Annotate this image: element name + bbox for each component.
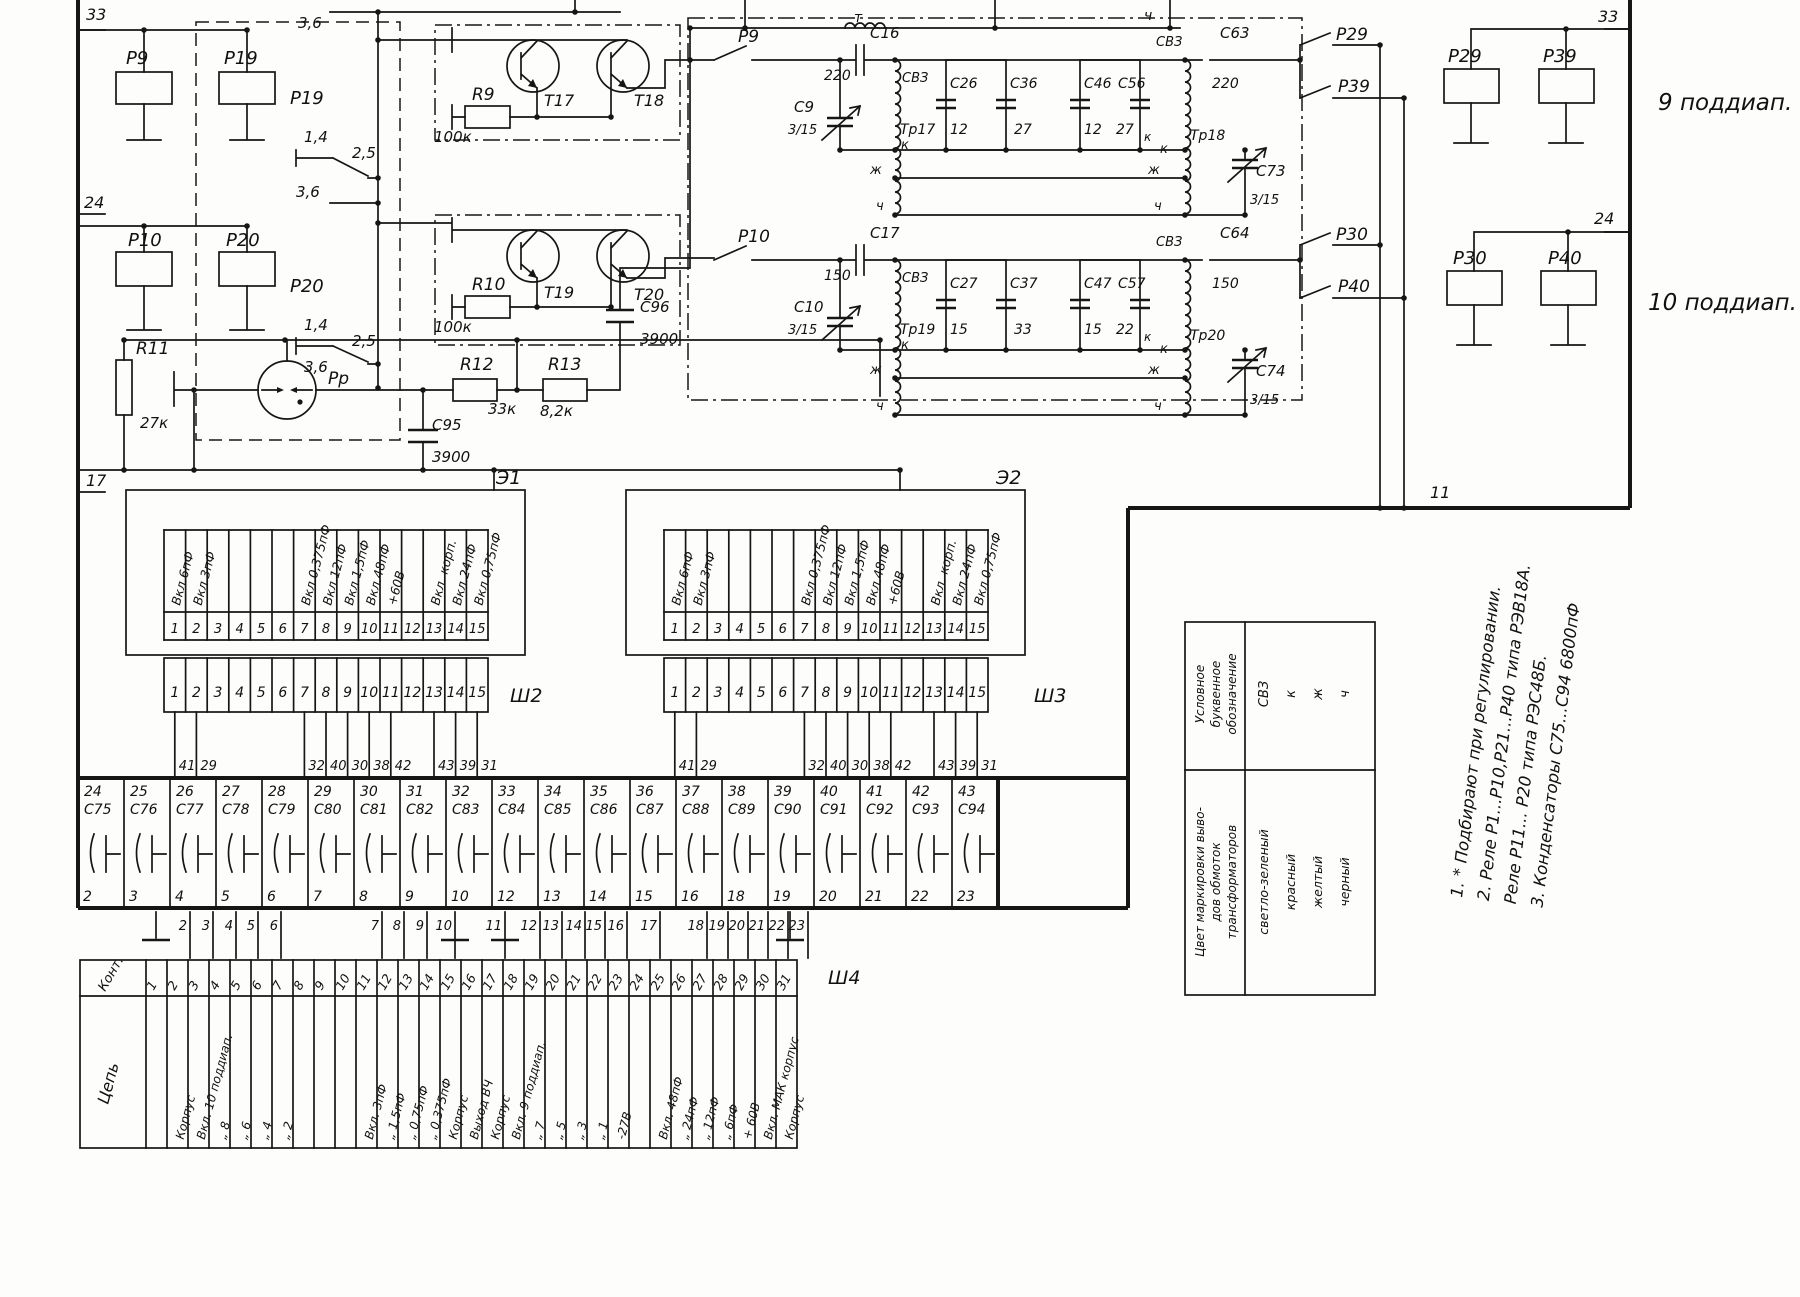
junction-dot (877, 337, 883, 343)
sw-p19c14: 1,4 (304, 128, 328, 146)
amp_bot-t1: Т19 (544, 283, 574, 302)
flb-c47v: 15 (1084, 322, 1102, 338)
misc-band9: 9 поддиап. (1658, 90, 1792, 116)
e-col-label: +60В (384, 569, 408, 607)
junction-dot (892, 57, 898, 63)
flb-c27: С27 (950, 276, 978, 292)
flb-c37: С37 (1010, 276, 1038, 292)
sh4-col-label: -27В (614, 1110, 635, 1141)
flb-zh2: ж (1147, 363, 1160, 378)
sh-pin-num: 1 (170, 685, 179, 701)
e-col-num: 15 (469, 622, 486, 637)
band-top-num: 26 (176, 784, 194, 800)
sh-pin-num: 2 (192, 685, 201, 701)
band-wire-num: 19 (708, 919, 725, 934)
sw-p20c36: 3,6 (304, 358, 328, 376)
sh4-cep-header: Цепь (94, 1060, 123, 1106)
junction-dot (687, 57, 693, 63)
junction-dot (1401, 95, 1407, 101)
band-wire-num: 20 (728, 919, 745, 934)
feedthrough-cap (275, 834, 305, 872)
band-wire-num: 18 (687, 919, 704, 934)
e-col-num: 7 (800, 622, 809, 637)
flb-p40: Р40 (1338, 277, 1370, 297)
band-top-num: 34 (544, 784, 562, 800)
junction-dot (1242, 412, 1248, 418)
band-top-num: 39 (774, 784, 792, 800)
flb-c17v: 150 (824, 268, 851, 284)
flt-c9v: 3/15 (788, 123, 817, 138)
band-cap-ref: С88 (682, 802, 710, 818)
relay-p9-box (116, 72, 172, 104)
junction-dot (121, 467, 127, 473)
sw-p19c36b: 3,6 (296, 183, 320, 201)
sh-pin-num: 13 (925, 685, 943, 701)
band-wire-num: 16 (607, 919, 624, 934)
junction-dot (1242, 147, 1248, 153)
resistor-r10 (465, 296, 510, 318)
rc-r11v: 27к (140, 414, 168, 432)
e-col-num: 10 (361, 622, 378, 637)
band-cap-ref: С83 (452, 802, 480, 818)
sh-pin-num: 3 (714, 685, 723, 701)
rc-r12v: 33к (488, 400, 516, 418)
e-col-num: 2 (692, 622, 700, 637)
rc-r11: R11 (136, 339, 169, 359)
border-l17: 17 (86, 471, 107, 490)
junction-dot (572, 9, 578, 15)
sw-p20c14: 1,4 (304, 316, 328, 334)
junction-dot (837, 347, 843, 353)
band-cap-ref: С93 (912, 802, 940, 818)
flb-c57v: 22 (1116, 322, 1134, 338)
band-bot-num: 12 (497, 889, 515, 905)
flt-c63: С63 (1220, 24, 1250, 42)
schematic-page: { "border": {"l33":"33","l24":"24","l17"… (0, 0, 1800, 1297)
junction-dot (608, 304, 614, 310)
band-wire-num: 7 (371, 919, 380, 934)
e-col-num: 15 (969, 622, 986, 637)
color-table-h1: буквенное (1209, 661, 1223, 728)
band-cap-ref: С85 (544, 802, 572, 818)
flt-k1: к (901, 138, 909, 153)
junction-dot (375, 9, 381, 15)
junction-dot (375, 175, 381, 181)
rc-r12: R12 (460, 355, 493, 375)
junction-dot (837, 57, 843, 63)
junction-dot (1401, 505, 1407, 511)
amp_top-t2: Т18 (634, 91, 664, 110)
sh-pin-num: 6 (278, 685, 287, 701)
junction-dot (282, 337, 288, 343)
junction-dot (1242, 347, 1248, 353)
e-col-num: 2 (192, 622, 200, 637)
e-col-num: 4 (735, 622, 743, 637)
junction-dot (491, 467, 497, 473)
band-cap-ref: С91 (820, 802, 848, 818)
feedthrough-cap (505, 834, 535, 872)
feedthrough-cap (919, 834, 949, 872)
flb-c47: С47 (1084, 276, 1112, 292)
flb-tr2: Тр20 (1190, 328, 1225, 344)
flb-c10: С10 (794, 298, 824, 316)
sh-wire-num: 40 (330, 759, 347, 774)
band-wire-num: 21 (748, 919, 765, 934)
e-col-num: 3 (214, 622, 222, 637)
band-bot-num: 16 (681, 889, 699, 905)
flt-svz1: СВЗ (902, 71, 928, 86)
relay-p10-box (116, 252, 172, 286)
sh-pin-num: 9 (343, 685, 352, 701)
flb-svz1: СВЗ (902, 271, 928, 286)
sh-pin-num: 2 (692, 685, 701, 701)
junction-dot (892, 257, 898, 263)
color-code: СВЗ (1257, 681, 1272, 707)
amp_top-t1: Т17 (544, 91, 575, 110)
e-col-label: Вкл.0,75пФ (971, 530, 1005, 606)
circuit-schematic: 3324173324119 поддиап.10 поддиап.Р9Р19Р1… (0, 0, 1800, 1297)
band-bot-num: 21 (865, 889, 883, 905)
band-wire-num: 5 (247, 919, 255, 934)
junction-dot (992, 25, 998, 31)
junction-dot (244, 223, 250, 229)
e-col-num: 1 (671, 622, 679, 637)
e-col-num: 9 (843, 622, 851, 637)
band-wire-num: 10 (435, 919, 452, 934)
band-bot-num: 8 (359, 889, 368, 905)
band-top-num: 40 (820, 784, 838, 800)
flt-p29: Р29 (1336, 25, 1368, 45)
misc-sh3: Ш3 (1034, 685, 1066, 707)
rc-c95v: 3900 (432, 448, 470, 466)
sh-wire-num: 31 (981, 759, 998, 774)
band-top-num: 29 (314, 784, 332, 800)
flb-k2: к (1144, 330, 1152, 344)
flb-c57: С57 (1118, 276, 1146, 292)
color-table-h2: трансформаторов (1225, 825, 1239, 939)
band-wire-num: 2 (179, 919, 187, 934)
junction-dot (1242, 212, 1248, 218)
feedthrough-cap (91, 834, 121, 872)
band-top-num: 33 (498, 784, 516, 800)
e-col-num: 11 (883, 622, 900, 637)
junction-dot (375, 385, 381, 391)
junction-dot (742, 25, 748, 31)
junction-dot (687, 25, 693, 31)
band-bot-num: 2 (83, 889, 92, 905)
feedthrough-cap (367, 834, 397, 872)
e-col-num: 6 (779, 622, 787, 637)
e-col-num: 13 (426, 622, 443, 637)
relays-p40: Р40 (1548, 248, 1582, 269)
misc-e1: Э1 (495, 467, 521, 489)
e-col-label: +60В (884, 569, 908, 607)
feedthrough-cap (459, 834, 489, 872)
e-col-num: 8 (322, 622, 330, 637)
e-col-num: 1 (171, 622, 179, 637)
sh-wire-num: 41 (179, 759, 196, 774)
junction-dot (1297, 57, 1303, 63)
feedthrough-cap (137, 834, 167, 872)
band-bot-num: 10 (451, 889, 469, 905)
band-bot-num: 7 (313, 889, 322, 905)
relay-p29-box (1444, 69, 1499, 103)
band-top-num: 28 (268, 784, 286, 800)
flt-p39: Р39 (1338, 77, 1370, 97)
generated-content: 3324173324119 поддиап.10 поддиап.Р9Р19Р1… (80, 5, 1797, 1148)
junction-dot (1563, 26, 1569, 32)
color-name: желтый (1310, 856, 1325, 909)
feedthrough-cap (229, 834, 259, 872)
band-cap-ref: С81 (360, 802, 388, 818)
band-wire-num: 17 (640, 919, 657, 934)
relay-p39-box (1539, 69, 1594, 103)
sh-pin-num: 3 (214, 685, 223, 701)
flt-c46v: 12 (1084, 122, 1102, 138)
junction-dot (121, 337, 127, 343)
flt-c9: С9 (794, 98, 814, 116)
sh-pin-num: 10 (360, 685, 378, 701)
flb-c17: С17 (870, 224, 900, 242)
e-col-num: 4 (235, 622, 243, 637)
rc-r13v: 8,2к (540, 402, 573, 420)
relay-p40-box (1541, 271, 1596, 305)
band-top-num: 42 (912, 784, 930, 800)
sh-pin-num: 8 (822, 685, 831, 701)
sw-p19l: Р19 (290, 88, 324, 109)
sh-wire-num: 31 (481, 759, 498, 774)
band-top-num: 36 (636, 784, 654, 800)
band-cap-ref: С92 (866, 802, 894, 818)
relays-p39: Р39 (1543, 46, 1577, 67)
band-bot-num: 6 (267, 889, 276, 905)
band-wire-num: 22 (768, 919, 785, 934)
notes-block: 1. * Подбирают при регулировании.2. Реле… (1447, 560, 1588, 909)
junction-dot (1167, 25, 1173, 31)
sh-wire-num: 43 (438, 759, 455, 774)
resistor-r13 (543, 379, 587, 401)
junction-dot (943, 147, 949, 153)
sh-pin-num: 14 (947, 685, 965, 701)
band-top-num: 27 (222, 784, 240, 800)
sh-pin-num: 5 (757, 685, 766, 701)
junction-dot (1137, 347, 1143, 353)
band-top-num: 32 (452, 784, 470, 800)
flb-c64: С64 (1220, 224, 1250, 242)
junction-dot (1565, 229, 1571, 235)
flb-k3: к (1160, 342, 1168, 357)
sh-wire-num: 32 (808, 759, 825, 774)
flb-svz2: СВЗ (1156, 235, 1182, 250)
border-l24: 24 (84, 193, 104, 212)
relays-p9: Р9 (126, 48, 148, 69)
junction-dot (1003, 347, 1009, 353)
junction-dot (1182, 375, 1188, 381)
junction-dot (1377, 505, 1383, 511)
e-col-num: 12 (404, 622, 421, 637)
band-top-num: 37 (682, 784, 700, 800)
flb-p30: Р30 (1336, 225, 1368, 245)
sh-pin-num: 12 (903, 685, 921, 701)
feedthrough-cap (827, 834, 857, 872)
e-col-num: 7 (300, 622, 309, 637)
band-bot-num: 15 (635, 889, 653, 905)
feedthrough-cap (643, 834, 673, 872)
sh-pin-num: 14 (447, 685, 465, 701)
e-col-num: 11 (383, 622, 400, 637)
junction-dot (897, 467, 903, 473)
amp_top-r: R9 (472, 85, 495, 105)
sw-p20l: Р20 (290, 276, 324, 297)
rc-c96v: 3900 (640, 330, 678, 348)
junction-dot (837, 147, 843, 153)
band-cap-ref: С76 (130, 802, 158, 818)
sh-wire-num: 42 (895, 759, 912, 774)
sh-wire-num: 38 (373, 759, 390, 774)
sh-pin-num: 6 (778, 685, 787, 701)
flb-c27v: 15 (950, 322, 968, 338)
feedthrough-cap (873, 834, 903, 872)
band-bot-num: 5 (221, 889, 230, 905)
junction-dot (514, 387, 520, 393)
junction-dot (534, 304, 540, 310)
flt-c46: С46 (1084, 76, 1112, 92)
sh-wire-num: 43 (938, 759, 955, 774)
junction-dot (375, 361, 381, 367)
sh-wire-num: 40 (830, 759, 847, 774)
relays-p19: Р19 (224, 48, 258, 69)
feedthrough-cap (735, 834, 765, 872)
band-bot-num: 3 (129, 889, 138, 905)
flt-c26v: 12 (950, 122, 968, 138)
junction-dot (943, 347, 949, 353)
band-top-num: 30 (360, 784, 378, 800)
sh-pin-num: 4 (235, 685, 244, 701)
band-wire-num: 23 (788, 919, 805, 934)
flt-c26: С26 (950, 76, 978, 92)
e-col-num: 3 (714, 622, 722, 637)
flt-k2: к (1144, 130, 1152, 144)
misc-sh4: Ш4 (828, 967, 860, 989)
color-code: ж (1311, 688, 1326, 701)
junction-dot (1377, 42, 1383, 48)
flt-c36v: 27 (1014, 122, 1032, 138)
flt-svz2: СВЗ (1156, 35, 1182, 50)
e-col-num: 8 (822, 622, 830, 637)
sw-p19c36a: 3,6 (298, 14, 322, 32)
junction-dot (892, 212, 898, 218)
sh-wire-num: 32 (308, 759, 325, 774)
feedthrough-cap (413, 834, 443, 872)
sh-wire-num: 30 (852, 759, 869, 774)
sw-rp: Рр (328, 369, 349, 389)
flb-ch1: ч (876, 399, 884, 414)
band-wire-num: 6 (270, 919, 278, 934)
sh4-col-label: „ 6пФ (719, 1103, 742, 1141)
feedthrough-cap (689, 834, 719, 872)
junction-dot (1137, 147, 1143, 153)
sh-pin-num: 15 (968, 685, 986, 701)
band-cap-ref: С89 (728, 802, 756, 818)
flb-zh1: ж (869, 363, 882, 378)
flb-k1: к (901, 338, 909, 353)
band-cap-ref: С90 (774, 802, 802, 818)
sh-wire-num: 29 (200, 759, 217, 774)
band-wire-num: 9 (416, 919, 424, 934)
rc-r13: R13 (548, 355, 581, 375)
band-cap-ref: С75 (84, 802, 112, 818)
resistor-r9 (465, 106, 510, 128)
feedthrough-cap (597, 834, 627, 872)
flt-c73: С73 (1256, 162, 1286, 180)
sh-pin-num: 12 (403, 685, 421, 701)
junction-dot (837, 257, 843, 263)
band-wire-num: 11 (485, 919, 502, 934)
flb-c10v: 3/15 (788, 323, 817, 338)
amp_bot-r: R10 (472, 275, 505, 295)
band-bot-num: 18 (727, 889, 745, 905)
sh-wire-num: 39 (460, 759, 477, 774)
band-cap-ref: С78 (222, 802, 250, 818)
band-cap-ref: С86 (590, 802, 618, 818)
band-wire-num: 4 (225, 919, 233, 934)
flb-tr1: Тр19 (900, 322, 935, 338)
flt-ch2: ч (1154, 199, 1162, 214)
color-code: ч (1338, 690, 1353, 698)
band-wire-num: 13 (542, 919, 559, 934)
sh-pin-num: 7 (800, 685, 809, 701)
sh-wire-num: 29 (700, 759, 717, 774)
flb-c37v: 33 (1014, 322, 1032, 338)
flt-zh1: ж (869, 163, 882, 178)
sh-wire-num: 41 (679, 759, 696, 774)
band-top-num: 43 (958, 784, 976, 800)
band-top-num: 41 (866, 784, 884, 800)
border-r24: 24 (1594, 209, 1614, 228)
junction-dot (244, 27, 250, 33)
junction-dot (1401, 295, 1407, 301)
flt-ch1: ч (876, 199, 884, 214)
junction-dot (1003, 147, 1009, 153)
flt-tr2: Тр18 (1190, 128, 1225, 144)
e-col-num: 14 (447, 622, 464, 637)
junction-dot (892, 175, 898, 181)
junction-dot (534, 114, 540, 120)
misc-ch_top: ч (1144, 8, 1152, 24)
junction-dot (1182, 257, 1188, 263)
sw-p20c25: 2,5 (352, 332, 376, 350)
feedthrough-cap (321, 834, 351, 872)
band-wire-num: 8 (393, 919, 401, 934)
flb-c74: С74 (1256, 362, 1286, 380)
band-cap-ref: С82 (406, 802, 434, 818)
rc-c96: С96 (640, 298, 670, 316)
band-bot-num: 9 (405, 889, 414, 905)
color-table-h2: дов обмоток (1209, 842, 1223, 923)
junction-dot (892, 375, 898, 381)
band-cap-ref: С79 (268, 802, 296, 818)
sh-pin-num: 5 (257, 685, 266, 701)
sh-pin-num: 1 (670, 685, 679, 701)
flt-c16v: 220 (824, 68, 851, 84)
sw-p19c25: 2,5 (352, 144, 376, 162)
junction-dot (892, 412, 898, 418)
sh-pin-num: 8 (322, 685, 331, 701)
relay-p19-box (219, 72, 275, 104)
band-cap-ref: С87 (636, 802, 664, 818)
band-cap-ref: С84 (498, 802, 526, 818)
flt-p9: Р9 (738, 27, 759, 47)
